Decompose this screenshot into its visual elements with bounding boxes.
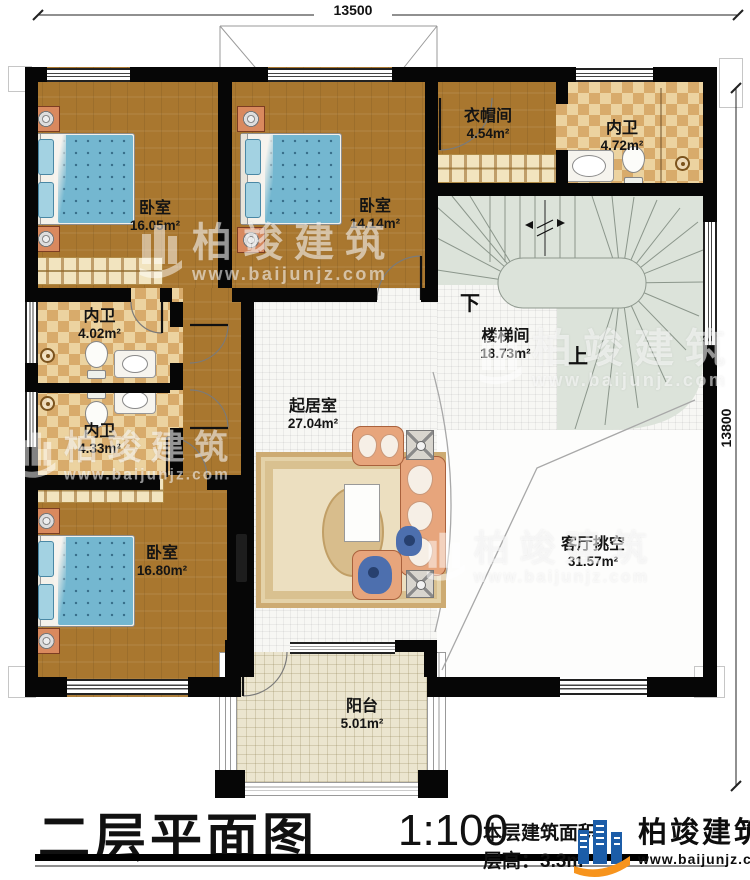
wall bbox=[703, 345, 717, 692]
wall bbox=[703, 82, 717, 222]
wall bbox=[188, 677, 241, 697]
wall bbox=[170, 363, 183, 390]
nightstand bbox=[237, 106, 265, 132]
wardrobe bbox=[30, 257, 163, 285]
pillow bbox=[38, 541, 54, 577]
room-label-living: 起居室27.04m² bbox=[258, 398, 368, 431]
window bbox=[576, 68, 653, 82]
room-label-bath-low: 内卫4.33m² bbox=[52, 423, 147, 456]
wall bbox=[25, 288, 131, 302]
pillow bbox=[38, 584, 54, 620]
sink bbox=[114, 350, 156, 378]
stairs-up-label: 上 bbox=[568, 340, 588, 369]
pillow bbox=[245, 139, 261, 175]
room-label-cloakroom: 衣帽间4.54m² bbox=[438, 108, 538, 141]
wall bbox=[25, 475, 160, 490]
room-label-balcony: 阳台5.01m² bbox=[312, 698, 412, 731]
wall bbox=[160, 288, 172, 302]
sheet-fold bbox=[54, 536, 66, 626]
shower-head-icon bbox=[40, 396, 55, 411]
window bbox=[290, 642, 395, 654]
wall bbox=[392, 67, 576, 82]
wall bbox=[653, 67, 717, 82]
balcony-pillar bbox=[418, 770, 448, 798]
wall bbox=[207, 475, 241, 490]
side-table bbox=[406, 430, 434, 460]
floor-plan-canvas: 卧室16.05m² 卧室14.14m² 衣帽间4.54m² 内卫4.72m² 楼… bbox=[0, 0, 750, 880]
wall bbox=[170, 428, 183, 475]
stair-center-island bbox=[498, 258, 646, 308]
wall bbox=[225, 640, 254, 677]
shower-head-icon bbox=[40, 348, 55, 363]
pillow bbox=[38, 182, 54, 218]
room-label-bath-mid: 内卫4.02m² bbox=[52, 308, 147, 341]
brand-name: 柏竣建筑 bbox=[638, 816, 750, 851]
nightstand bbox=[237, 227, 265, 253]
dimension-top: 13500 bbox=[314, 2, 392, 18]
sink bbox=[564, 150, 614, 182]
room-label-bath-top: 内卫4.72m² bbox=[572, 120, 672, 153]
sheet-fold bbox=[54, 134, 66, 224]
shower-head-icon bbox=[675, 156, 690, 171]
brand-url: www.baijunjz.com bbox=[638, 851, 750, 867]
sheet-fold bbox=[261, 134, 273, 224]
brand-logo: 柏竣建筑 www.baijunjz.com bbox=[570, 816, 750, 878]
void-diagonal bbox=[442, 400, 695, 670]
toilet bbox=[84, 341, 109, 379]
loveseat bbox=[352, 426, 404, 466]
room-label-stairwell: 楼梯间18.73m² bbox=[448, 328, 563, 361]
sofa bbox=[400, 456, 446, 576]
room-label-void: 客厅挑空31.57m² bbox=[528, 536, 658, 569]
person bbox=[396, 526, 422, 556]
stairs-down-label: 下 bbox=[460, 287, 480, 316]
pillow bbox=[245, 182, 261, 218]
window bbox=[703, 222, 717, 345]
wall bbox=[25, 677, 67, 697]
coffee-table bbox=[344, 484, 380, 542]
wall bbox=[25, 383, 170, 393]
wall bbox=[130, 67, 268, 82]
wall bbox=[425, 183, 717, 196]
dimension-right: 13800 bbox=[718, 392, 734, 464]
wall bbox=[218, 82, 232, 288]
tv bbox=[236, 534, 247, 582]
room-label-bedroom1: 卧室16.05m² bbox=[105, 200, 205, 233]
cloakroom-rack bbox=[433, 154, 564, 183]
window bbox=[47, 68, 130, 82]
window bbox=[560, 679, 647, 695]
wall bbox=[424, 640, 437, 677]
wall bbox=[25, 67, 38, 302]
wall bbox=[425, 196, 438, 302]
window bbox=[25, 392, 38, 447]
room-label-bedroom3: 卧室16.80m² bbox=[112, 545, 212, 578]
brand-logo-icon bbox=[570, 816, 634, 878]
pillow bbox=[38, 139, 54, 175]
wall bbox=[556, 82, 568, 104]
wall bbox=[170, 302, 183, 327]
window bbox=[25, 302, 38, 363]
wall bbox=[647, 677, 717, 697]
wall bbox=[241, 302, 254, 640]
wall bbox=[427, 677, 560, 697]
wall bbox=[25, 490, 38, 697]
floor-height-label: 层高：3.3m bbox=[483, 846, 583, 873]
wall bbox=[425, 82, 438, 183]
side-table bbox=[406, 570, 434, 598]
window bbox=[268, 68, 392, 82]
balcony-pillar bbox=[215, 770, 245, 798]
wall bbox=[232, 288, 377, 302]
person bbox=[358, 556, 392, 594]
room-label-bedroom2: 卧室14.14m² bbox=[325, 198, 425, 231]
window bbox=[67, 679, 188, 695]
